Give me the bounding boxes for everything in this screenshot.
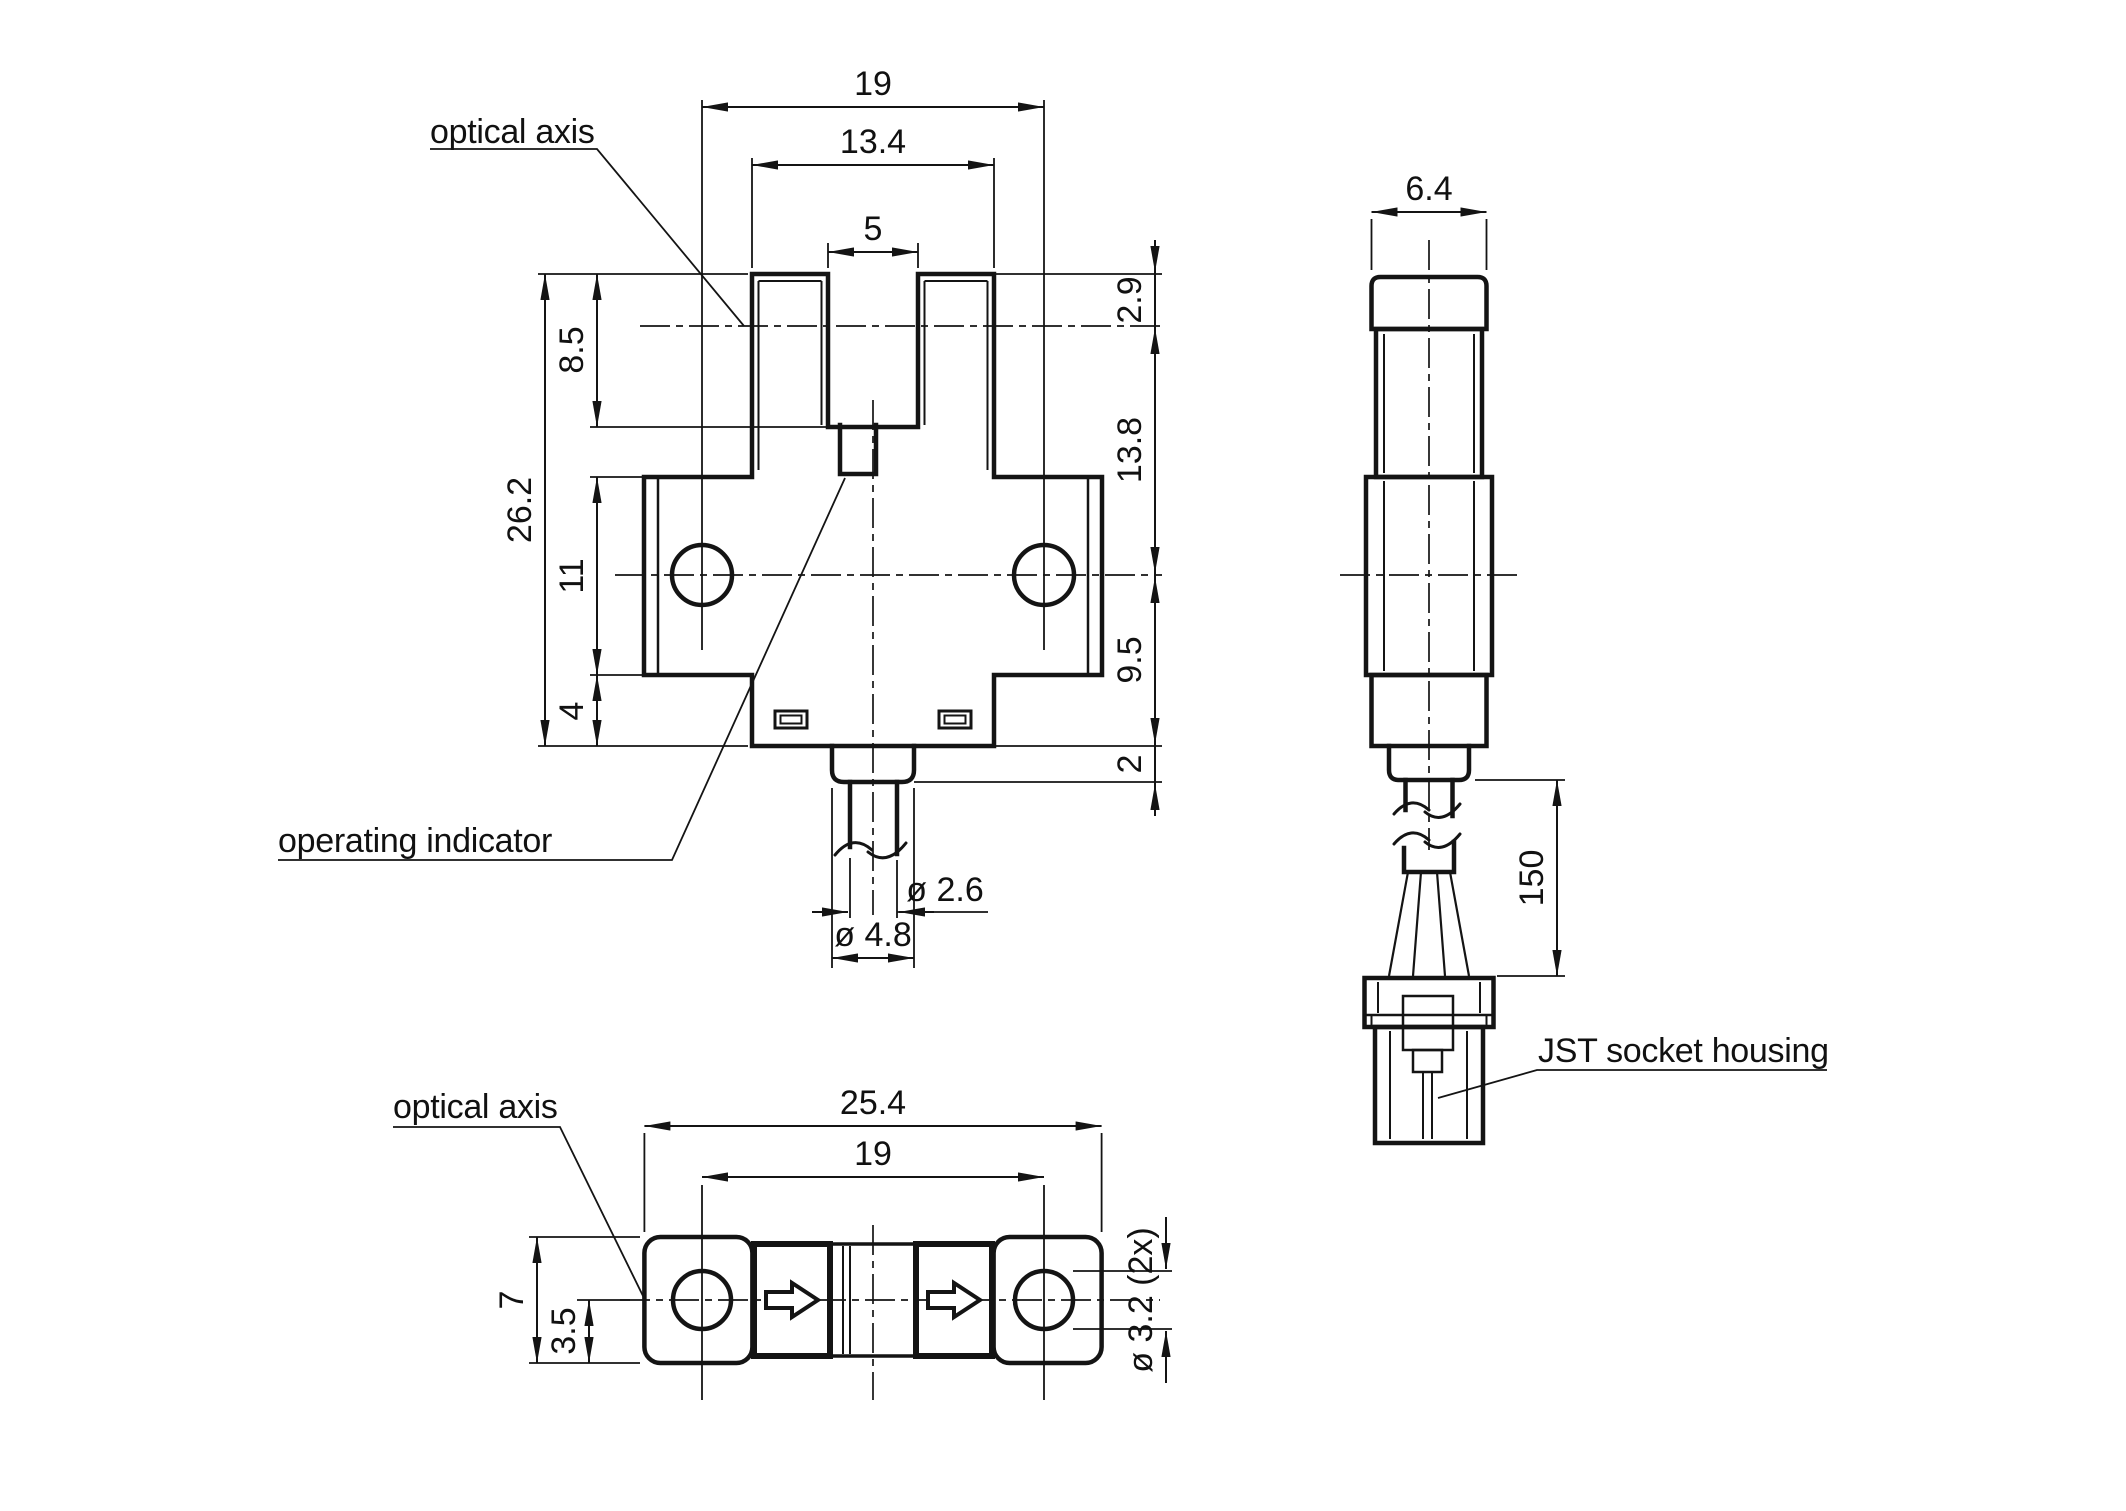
- dim-front-flange-height: 11: [553, 558, 591, 593]
- jst-leader: [1438, 1070, 1827, 1098]
- optical-axis-label-top: optical axis: [430, 113, 595, 151]
- connector-wires: [1389, 872, 1469, 976]
- dim-front-slot-depth: 8.5: [553, 326, 591, 373]
- front-view: 19 13.4 5 26.2 8.5 11 4 2.9 13.8 9.5 2: [278, 65, 1162, 968]
- dim-front-axis-to-hole: 13.8: [1111, 417, 1149, 483]
- optical-axis-label-bottom: optical axis: [393, 1088, 558, 1126]
- bottom-view: 25.4 19 7 3.5 ø 3.2 (2x) optical axis: [393, 1084, 1172, 1400]
- dimensional-drawing-svg: 19 13.4 5 26.2 8.5 11 4 2.9 13.8 9.5 2: [0, 0, 2126, 1511]
- dim-bottom-overall-length: 25.4: [840, 1084, 906, 1122]
- dim-bottom-half-height: 3.5: [545, 1307, 583, 1354]
- dim-front-axis-offset: 2.9: [1111, 276, 1149, 323]
- emitter-direction-arrow: [766, 1283, 818, 1317]
- optical-axis-leader-bottom: [393, 1127, 644, 1298]
- dim-gland-diameter: ø 4.8: [834, 916, 911, 954]
- operating-indicator-label: operating indicator: [278, 822, 552, 860]
- operating-indicator-leader: [278, 478, 845, 860]
- side-view: 6.4 150 JST socket housing: [1340, 170, 1829, 1143]
- optical-axis-leader-top: [430, 149, 744, 326]
- jst-connector-flange: [1365, 978, 1494, 1027]
- dim-bottom-height: 7: [493, 1291, 531, 1310]
- dim-front-body-width: 13.4: [840, 123, 906, 161]
- receiver-direction-arrow: [928, 1283, 980, 1317]
- dim-bottom-hole-distance: 19: [854, 1135, 892, 1173]
- dim-front-slot-width: 5: [864, 210, 883, 248]
- dim-bottom-hole-diameter: ø 3.2 (2x): [1122, 1227, 1160, 1372]
- dim-front-bottom-offset: 4: [553, 702, 591, 721]
- dim-front-hole-to-bottom: 9.5: [1111, 636, 1149, 683]
- technical-drawing-page: 19 13.4 5 26.2 8.5 11 4 2.9 13.8 9.5 2: [0, 0, 2126, 1511]
- jst-socket-housing-label: JST socket housing: [1538, 1032, 1829, 1070]
- dim-front-overall-height: 26.2: [501, 477, 539, 543]
- dim-cable-diameter: ø 2.6: [906, 871, 983, 909]
- dim-side-width: 6.4: [1405, 170, 1452, 208]
- dim-front-gland-height: 2: [1111, 755, 1149, 774]
- dim-cable-length: 150: [1513, 850, 1551, 907]
- operating-indicator-tab: [840, 425, 876, 474]
- dim-front-hole-distance: 19: [854, 65, 892, 103]
